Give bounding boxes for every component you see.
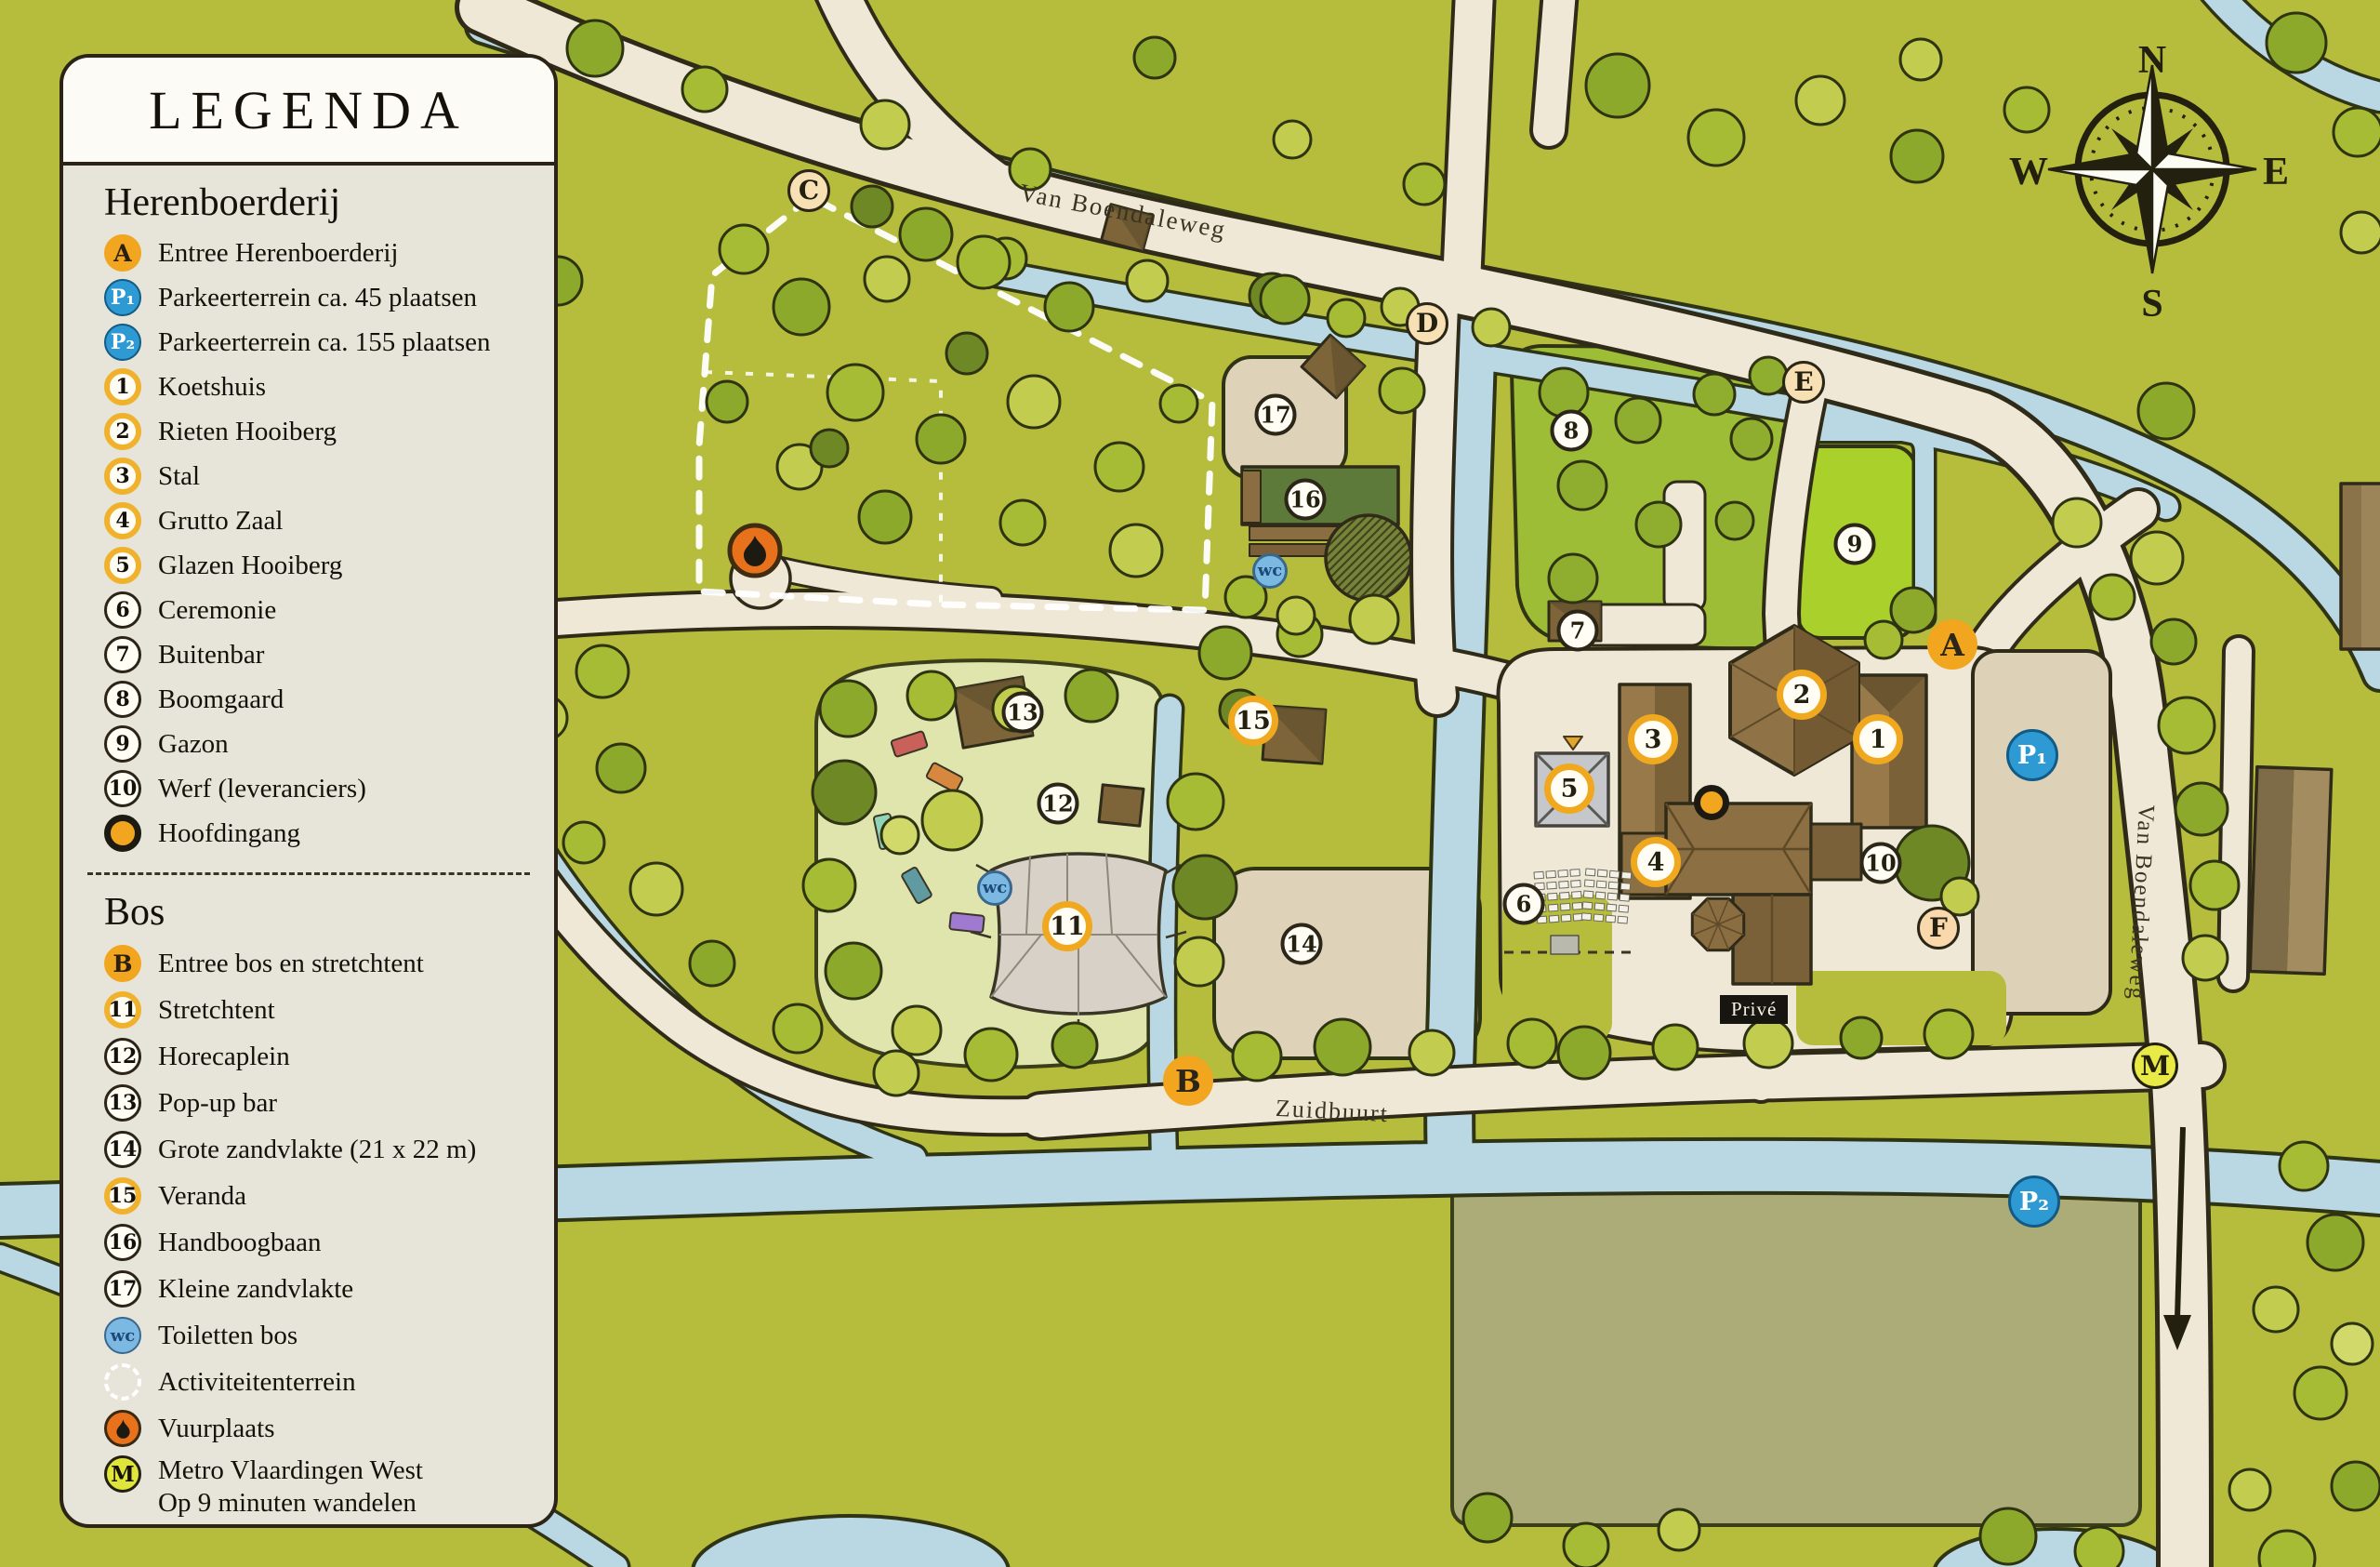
building-gazebo bbox=[1692, 898, 1743, 949]
marker-wc-north: wc bbox=[1252, 553, 1288, 589]
number-17-icon: 17 bbox=[104, 1270, 141, 1308]
entree-B-icon: B bbox=[104, 945, 141, 982]
marker-10-werf: 10 bbox=[1860, 843, 1902, 884]
number-11-icon: 11 bbox=[104, 991, 141, 1029]
number-6-icon: 6 bbox=[104, 591, 141, 629]
marker-16-handboogbaan: 16 bbox=[1285, 479, 1327, 521]
marker-P1-parking: P₁ bbox=[2006, 729, 2058, 781]
entree-A-icon: A bbox=[104, 234, 141, 272]
number-4-icon: 4 bbox=[104, 502, 141, 539]
vuurplaats-icon bbox=[730, 525, 780, 576]
legend-item-grutto-zaal: 4 Grutto Zaal bbox=[63, 498, 554, 543]
legend-item-kleine-zandvlakte: 17 Kleine zandvlakte bbox=[63, 1266, 554, 1312]
number-9-icon: 9 bbox=[104, 725, 141, 763]
legend-item-metro: M Metro Vlaardingen West Op 9 minuten wa… bbox=[63, 1452, 554, 1519]
fire-icon bbox=[104, 1410, 141, 1447]
marker-11-stretchtent: 11 bbox=[1042, 901, 1092, 951]
activiteitenterrein-icon bbox=[104, 1363, 141, 1401]
legend-item-grote-zandvlakte: 14 Grote zandvlakte (21 x 22 m) bbox=[63, 1126, 554, 1173]
marker-14-grote-zandvlakte: 14 bbox=[1281, 923, 1323, 965]
number-15-icon: 15 bbox=[104, 1177, 141, 1215]
marker-1-koetshuis: 1 bbox=[1853, 714, 1903, 764]
orchard-path-v bbox=[1664, 482, 1705, 612]
compass-n: N bbox=[2138, 39, 2166, 82]
plaza-lawn-south bbox=[1796, 971, 2006, 1045]
metro-icon: M bbox=[104, 1455, 141, 1493]
marker-15-veranda: 15 bbox=[1228, 696, 1278, 746]
legend-title: LEGENDA bbox=[149, 79, 469, 141]
marker-A-entree: A bbox=[1927, 619, 1977, 670]
legend-item-werf: 10 Werf (leveranciers) bbox=[63, 766, 554, 811]
flame-glyph bbox=[114, 1418, 132, 1440]
marker-6-ceremonie: 6 bbox=[1503, 883, 1545, 925]
number-8-icon: 8 bbox=[104, 681, 141, 718]
legend-item-gazon: 9 Gazon bbox=[63, 722, 554, 766]
number-3-icon: 3 bbox=[104, 458, 141, 495]
legend-item-stal: 3 Stal bbox=[63, 454, 554, 498]
marker-F: F bbox=[1917, 907, 1960, 949]
marker-9-gazon: 9 bbox=[1834, 524, 1876, 565]
legend-item-p2: P₂ Parkeerterrein ca. 155 plaatsen bbox=[63, 320, 554, 365]
building-barn-east bbox=[2250, 767, 2332, 975]
hoofdingang-icon bbox=[104, 815, 141, 852]
number-1-icon: 1 bbox=[104, 368, 141, 405]
marker-C: C bbox=[787, 169, 830, 212]
compass-w: W bbox=[2009, 151, 2048, 193]
wc-icon: wc bbox=[104, 1317, 141, 1354]
legend-panel: LEGENDA Herenboerderij A Entree Herenboe… bbox=[59, 54, 558, 1528]
legend-item-boomgaard: 8 Boomgaard bbox=[63, 677, 554, 722]
marker-2-rieten-hooiberg: 2 bbox=[1777, 670, 1827, 720]
number-12-icon: 12 bbox=[104, 1038, 141, 1075]
legend-item-p1: P₁ Parkeerterrein ca. 45 plaatsen bbox=[63, 275, 554, 320]
marker-4-grutto-zaal: 4 bbox=[1631, 837, 1681, 887]
number-10-icon: 10 bbox=[104, 770, 141, 807]
marker-D: D bbox=[1406, 302, 1448, 345]
legend-item-horecaplein: 12 Horecaplein bbox=[63, 1033, 554, 1080]
parking-p1-icon: P₁ bbox=[104, 279, 141, 316]
legend-item-hoofdingang: Hoofdingang bbox=[63, 811, 554, 856]
marker-12-horecaplein: 12 bbox=[1038, 783, 1079, 825]
building-thatched-roof bbox=[1326, 515, 1411, 601]
number-7-icon: 7 bbox=[104, 636, 141, 673]
road-label-zuidbuurt: Zuidbuurt bbox=[1275, 1095, 1389, 1128]
number-5-icon: 5 bbox=[104, 547, 141, 584]
parking-p2-icon: P₂ bbox=[104, 324, 141, 361]
legend-item-koetshuis: 1 Koetshuis bbox=[63, 365, 554, 409]
hoofdingang-marker bbox=[1694, 785, 1729, 820]
legend-item-ceremonie: 6 Ceremonie bbox=[63, 588, 554, 632]
legend-header: LEGENDA bbox=[63, 58, 554, 166]
legend-item-entree: A Entree Herenboerderij bbox=[63, 231, 554, 275]
number-16-icon: 16 bbox=[104, 1224, 141, 1261]
legend-item-activiteitenterrein: Activiteitenterrein bbox=[63, 1359, 554, 1405]
legend-item-glazen-hooiberg: 5 Glazen Hooiberg bbox=[63, 543, 554, 588]
marker-7-buitenbar: 7 bbox=[1557, 610, 1599, 652]
marker-wc-bos: wc bbox=[977, 870, 1012, 906]
marker-P2-parking: P₂ bbox=[2008, 1175, 2060, 1228]
marker-5-glazen-hooiberg: 5 bbox=[1544, 764, 1594, 814]
legend-item-handboogbaan: 16 Handboogbaan bbox=[63, 1219, 554, 1266]
legend-item-buitenbar: 7 Buitenbar bbox=[63, 632, 554, 677]
compass-e: E bbox=[2263, 151, 2289, 193]
legend-item-rieten-hooiberg: 2 Rieten Hooiberg bbox=[63, 409, 554, 454]
building-edge-east bbox=[2341, 484, 2380, 649]
legend-item-toiletten: wc Toiletten bos bbox=[63, 1312, 554, 1359]
legend-item-vuurplaats: Vuurplaats bbox=[63, 1405, 554, 1452]
marker-13-popup-bar: 13 bbox=[1002, 692, 1044, 734]
marker-M-metro: M bbox=[2132, 1042, 2178, 1089]
marker-3-stal: 3 bbox=[1628, 714, 1678, 764]
legend-item-entree-bos: B Entree bos en stretchtent bbox=[63, 940, 554, 987]
number-14-icon: 14 bbox=[104, 1131, 141, 1168]
compass-s: S bbox=[2141, 283, 2162, 325]
legend-item-stretchtent: 11 Stretchtent bbox=[63, 987, 554, 1033]
prive-label: Privé bbox=[1720, 995, 1788, 1024]
legend-item-popup-bar: 13 Pop-up bar bbox=[63, 1080, 554, 1126]
marker-E: E bbox=[1782, 361, 1825, 404]
legend-section-bos: Bos bbox=[104, 890, 554, 935]
legend-item-veranda: 15 Veranda bbox=[63, 1173, 554, 1219]
marker-17-kleine-zandvlakte: 17 bbox=[1255, 394, 1297, 436]
marker-8-boomgaard: 8 bbox=[1551, 410, 1593, 452]
number-2-icon: 2 bbox=[104, 413, 141, 450]
parking-p1-area bbox=[1973, 651, 2110, 1014]
legend-divider bbox=[87, 872, 530, 875]
marker-B-entree-bos: B bbox=[1163, 1056, 1213, 1106]
legend-section-herenboerderij: Herenboerderij bbox=[104, 180, 554, 225]
building-shed-meadow bbox=[1099, 785, 1144, 826]
number-13-icon: 13 bbox=[104, 1084, 141, 1122]
